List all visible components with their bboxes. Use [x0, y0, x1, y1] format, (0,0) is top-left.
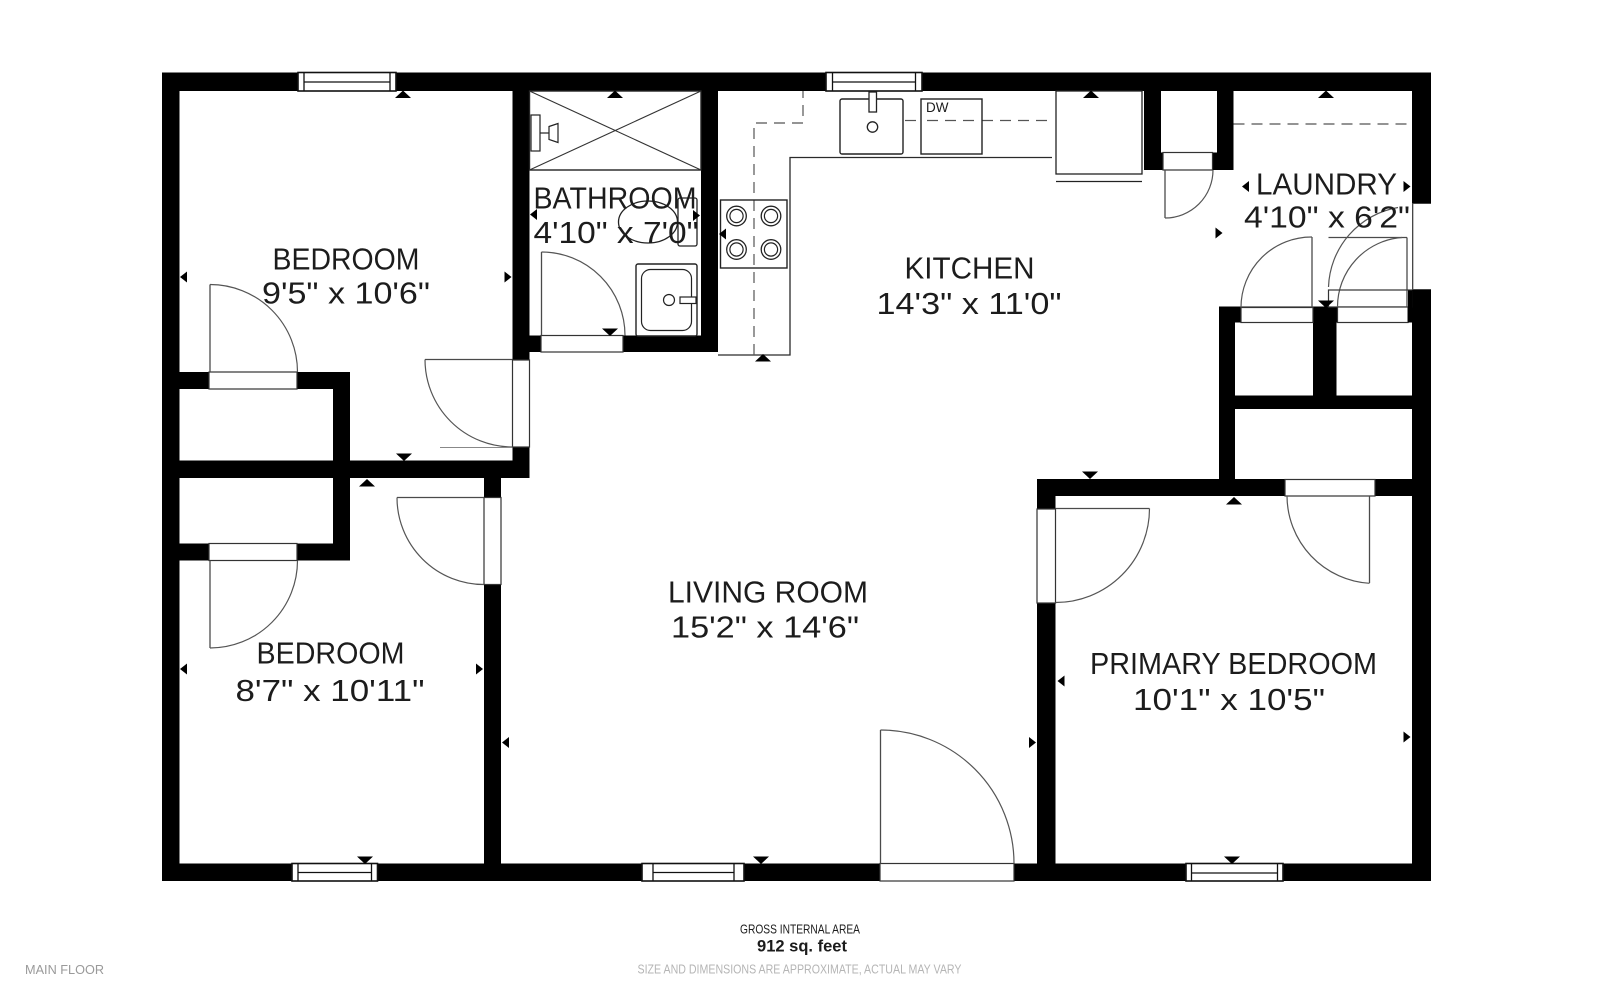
svg-text:DW: DW [926, 100, 949, 115]
svg-text:10'1" x 10'5": 10'1" x 10'5" [1133, 682, 1325, 717]
svg-text:912 sq. feet: 912 sq. feet [757, 938, 847, 956]
svg-text:MAIN FLOOR: MAIN FLOOR [25, 962, 104, 977]
svg-text:4'10" x 7'0": 4'10" x 7'0" [534, 215, 699, 250]
svg-text:GROSS INTERNAL AREA: GROSS INTERNAL AREA [740, 923, 861, 937]
svg-text:BEDROOM: BEDROOM [273, 242, 420, 277]
svg-text:KITCHEN: KITCHEN [905, 251, 1035, 286]
svg-text:PRIMARY BEDROOM: PRIMARY BEDROOM [1090, 646, 1377, 681]
svg-text:9'5" x 10'6": 9'5" x 10'6" [262, 276, 430, 311]
svg-text:LAUNDRY: LAUNDRY [1256, 167, 1397, 202]
svg-text:4'10" x 6'2": 4'10" x 6'2" [1244, 200, 1410, 235]
svg-text:SIZE AND DIMENSIONS ARE APPROX: SIZE AND DIMENSIONS ARE APPROXIMATE, ACT… [638, 963, 963, 977]
svg-text:BATHROOM: BATHROOM [534, 181, 697, 216]
svg-text:8'7" x 10'11": 8'7" x 10'11" [236, 673, 425, 708]
svg-text:15'2" x 14'6": 15'2" x 14'6" [671, 610, 859, 645]
svg-text:14'3" x 11'0": 14'3" x 11'0" [877, 286, 1062, 321]
svg-text:BEDROOM: BEDROOM [257, 636, 405, 671]
svg-text:LIVING ROOM: LIVING ROOM [668, 575, 868, 610]
